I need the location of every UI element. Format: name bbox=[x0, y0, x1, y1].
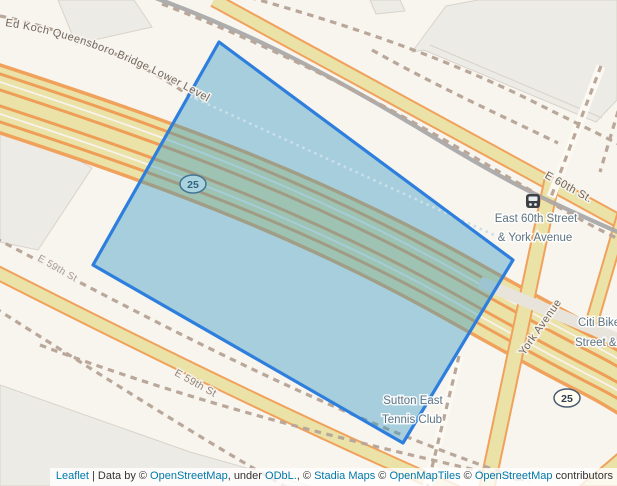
attribution-bar: Leaflet | Data by © OpenStreetMap, under… bbox=[50, 468, 617, 486]
attribution-text-under: , under bbox=[228, 470, 265, 482]
route-shield-east-label: 25 bbox=[561, 393, 573, 405]
attribution-link-openmaptiles[interactable]: OpenMapTiles bbox=[389, 470, 460, 482]
map-viewport: 25 25 Ed Koch Queensboro Bridge Lower Le… bbox=[0, 0, 617, 486]
attribution-link-odbl[interactable]: ODbL. bbox=[265, 470, 297, 482]
attribution-link-stadia-maps[interactable]: Stadia Maps bbox=[314, 470, 375, 482]
bus-stop-icon[interactable] bbox=[526, 194, 540, 208]
tennis-club-label-line2: Tennis Club bbox=[382, 414, 442, 426]
attribution-link-leaflet[interactable]: Leaflet bbox=[56, 470, 89, 482]
tennis-club-label-line1: Sutton East bbox=[383, 395, 443, 407]
attribution-text-c1: , © bbox=[297, 470, 314, 482]
attribution-text-c3: © bbox=[461, 470, 475, 482]
attribution-link-openstreetmap-2[interactable]: OpenStreetMap bbox=[475, 470, 553, 482]
bus-stop-label-line2: & York Avenue bbox=[498, 232, 573, 244]
map-canvas[interactable]: 25 25 Ed Koch Queensboro Bridge Lower Le… bbox=[0, 0, 617, 486]
attribution-text-contributors: contributors bbox=[552, 470, 613, 482]
citibike-label-line2: Street & bbox=[575, 337, 617, 349]
bus-stop-label-line1: East 60th Street bbox=[495, 213, 578, 225]
attribution-text-sep: | Data by © bbox=[89, 470, 150, 482]
citibike-label-line1: Citi Bike bbox=[578, 317, 617, 329]
building-annex-top bbox=[370, 0, 405, 14]
attribution-text-c2: © bbox=[375, 470, 389, 482]
route-shield-east: 25 bbox=[554, 389, 580, 407]
attribution-link-openstreetmap-1[interactable]: OpenStreetMap bbox=[150, 470, 228, 482]
